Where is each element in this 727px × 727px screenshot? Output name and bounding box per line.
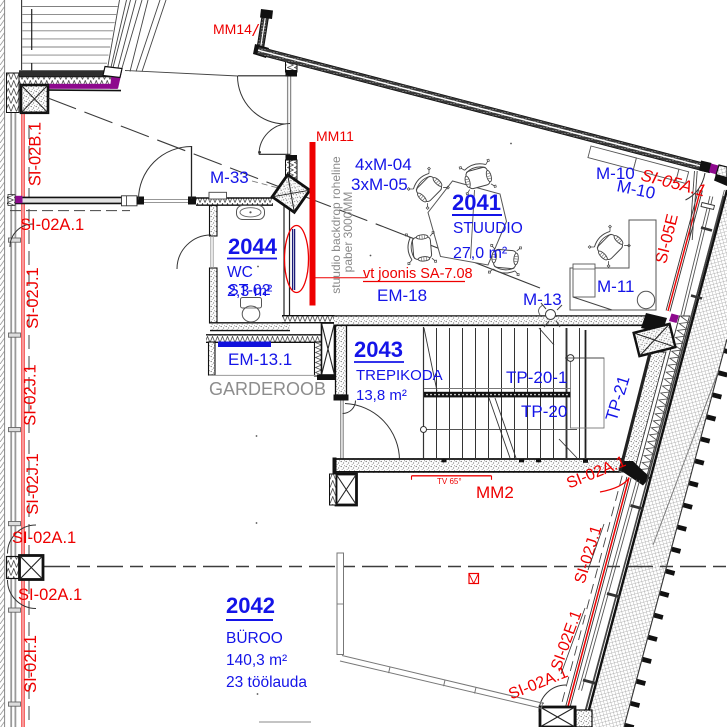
svg-text:EM-13.1: EM-13.1 xyxy=(228,350,292,369)
svg-text:vt joonis SA-7.08: vt joonis SA-7.08 xyxy=(363,266,473,282)
svg-text:2042: 2042 xyxy=(226,593,275,618)
svg-text:3xM-05: 3xM-05 xyxy=(351,175,408,194)
svg-text:BÜROO: BÜROO xyxy=(226,629,283,647)
svg-text:GARDEROOB: GARDEROOB xyxy=(209,379,326,399)
svg-text:2043: 2043 xyxy=(354,337,403,362)
svg-text:4xM-04: 4xM-04 xyxy=(355,155,412,174)
svg-text:M-33: M-33 xyxy=(210,168,249,187)
svg-text:SI-02I.1: SI-02I.1 xyxy=(22,635,40,693)
svg-text:TP-20: TP-20 xyxy=(521,402,567,421)
svg-text:TREPIKODA: TREPIKODA xyxy=(356,367,443,384)
svg-text:SI-02J.1: SI-02J.1 xyxy=(24,267,42,328)
svg-text:ST-02: ST-02 xyxy=(228,282,271,299)
svg-text:SI-02J.1: SI-02J.1 xyxy=(22,364,40,425)
svg-text:M-11: M-11 xyxy=(597,277,634,296)
svg-text:paber 3000MM: paber 3000MM xyxy=(341,192,355,273)
svg-text:SI-02B.1: SI-02B.1 xyxy=(27,122,45,186)
svg-text:140,3 m²: 140,3 m² xyxy=(226,652,287,669)
svg-text:2041: 2041 xyxy=(452,190,501,215)
svg-text:SI-02J.1: SI-02J.1 xyxy=(24,453,42,514)
svg-text:MM14: MM14 xyxy=(213,21,252,37)
svg-text:MM11: MM11 xyxy=(316,128,354,144)
svg-text:13,8 m²: 13,8 m² xyxy=(356,387,407,404)
svg-text:M-13: M-13 xyxy=(523,290,562,309)
svg-text:27,0 m²: 27,0 m² xyxy=(453,245,508,262)
svg-text:STUUDIO: STUUDIO xyxy=(453,220,523,237)
svg-text:SI-02A.1: SI-02A.1 xyxy=(12,529,76,547)
svg-text:WC: WC xyxy=(227,264,253,281)
svg-text:2044: 2044 xyxy=(228,234,278,259)
svg-text:SI-02A.1: SI-02A.1 xyxy=(20,216,84,234)
svg-text:TP-20-1: TP-20-1 xyxy=(506,368,567,387)
svg-text:23 töölauda: 23 töölauda xyxy=(226,674,307,691)
svg-text:EM-18: EM-18 xyxy=(377,286,427,305)
svg-text:MM2: MM2 xyxy=(476,483,514,502)
svg-text:SI-02A.1: SI-02A.1 xyxy=(18,586,82,604)
svg-text:TV 65°: TV 65° xyxy=(437,477,462,486)
